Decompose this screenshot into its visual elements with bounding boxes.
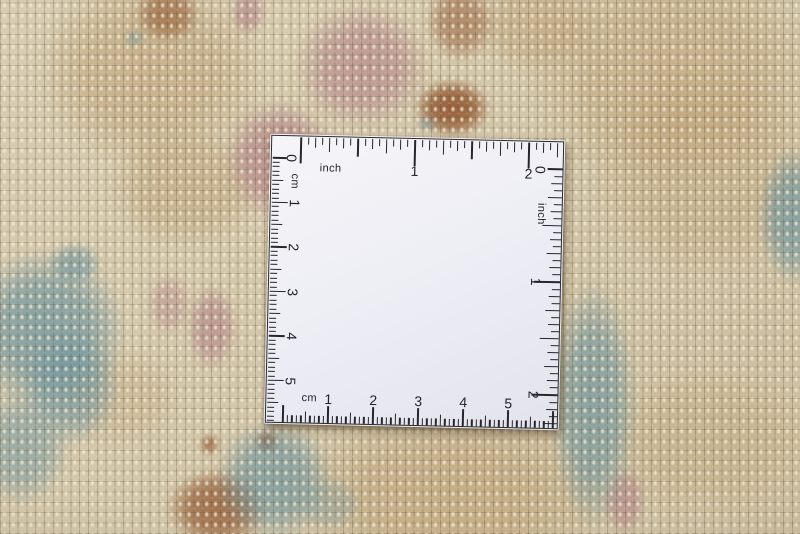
- tick-mark: [291, 415, 292, 422]
- tick-mark: [359, 416, 360, 423]
- tick-mark: [300, 415, 301, 422]
- tick-mark: [449, 418, 450, 425]
- scale-number: 5: [504, 396, 512, 410]
- tick-mark: [548, 421, 549, 428]
- tick-mark: [534, 420, 535, 427]
- tick-mark: [462, 409, 464, 426]
- tick-mark: [453, 418, 454, 425]
- tick-mark: [503, 420, 504, 427]
- tick-mark: [426, 418, 427, 425]
- scale-number: 1: [324, 392, 332, 406]
- tick-mark: [417, 408, 419, 425]
- measuring-card: 12inch 120inch 123450cm 12345cm: [264, 134, 566, 431]
- tick-mark: [431, 418, 432, 425]
- tick-mark: [323, 415, 324, 422]
- tick-mark: [314, 415, 315, 422]
- tick-mark: [296, 415, 297, 422]
- tick-mark: [318, 415, 319, 422]
- tick-mark: [386, 417, 387, 424]
- tick-mark: [399, 417, 400, 424]
- tick-mark: [444, 418, 445, 425]
- tick-mark: [521, 420, 522, 427]
- tick-mark: [440, 414, 441, 425]
- tick-mark: [341, 416, 342, 423]
- tick-mark: [363, 416, 364, 423]
- scale-number: 2: [369, 393, 377, 407]
- tick-mark: [480, 419, 481, 426]
- tick-mark: [471, 419, 472, 426]
- tick-mark: [516, 420, 517, 427]
- tick-mark: [543, 420, 544, 427]
- tick-mark: [390, 417, 391, 424]
- tick-mark: [507, 410, 509, 427]
- tick-mark: [287, 415, 288, 422]
- tick-mark: [354, 416, 355, 423]
- tick-mark: [458, 419, 459, 426]
- tick-mark: [305, 411, 306, 422]
- tick-mark: [539, 420, 540, 427]
- photo-rug-with-ruler: 12inch 120inch 123450cm 12345cm: [0, 0, 800, 534]
- tick-mark: [485, 415, 486, 426]
- scale-number: 3: [414, 394, 422, 408]
- tick-mark: [368, 416, 369, 423]
- tick-mark: [435, 418, 436, 425]
- scale-number: 4: [459, 395, 467, 409]
- tick-mark: [336, 416, 337, 423]
- tick-mark: [408, 417, 409, 424]
- tick-mark: [350, 412, 351, 423]
- tick-mark: [476, 419, 477, 426]
- tick-mark: [381, 417, 382, 424]
- tick-mark: [467, 419, 468, 426]
- ruler-scale-bottom-cm: 12345cm: [264, 134, 566, 431]
- tick-mark: [512, 420, 513, 427]
- tick-mark: [327, 406, 329, 423]
- tick-mark: [404, 417, 405, 424]
- tick-mark: [377, 417, 378, 424]
- tick-mark: [494, 419, 495, 426]
- tick-mark: [552, 411, 554, 428]
- tick-mark: [525, 420, 526, 427]
- tick-mark: [332, 416, 333, 423]
- tick-mark: [498, 419, 499, 426]
- tick-mark: [345, 416, 346, 423]
- tick-mark: [395, 413, 396, 424]
- unit-label: cm: [301, 393, 317, 404]
- tick-mark: [372, 407, 374, 424]
- tick-mark: [422, 418, 423, 425]
- tick-mark: [282, 405, 284, 422]
- tick-mark: [489, 419, 490, 426]
- tick-mark: [413, 417, 414, 424]
- tick-mark: [530, 416, 531, 427]
- tick-mark: [309, 415, 310, 422]
